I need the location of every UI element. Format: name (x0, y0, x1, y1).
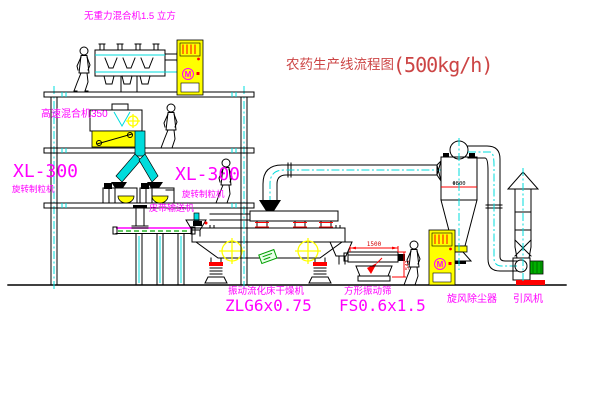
label-granulator-left-model: XL-300 (13, 161, 78, 182)
exhaust-duct (259, 163, 441, 211)
motor-symbol: M (437, 260, 444, 269)
diagram-title-capacity: (500kg/h) (393, 53, 492, 77)
label-granulator-right-name: 旋转制粒机 (182, 189, 225, 199)
labels: 农药生产线流程图 (500kg/h) 无重力混合机1.5 立方 高速混合机350… (12, 10, 543, 315)
motor-symbol: M (185, 70, 192, 79)
label-cyclone: 旋风除尘器 (447, 292, 497, 305)
gravity-free-mixer (95, 44, 178, 92)
downcomer-duct (468, 146, 517, 271)
floor-slab-middle (44, 148, 254, 153)
process-flow-diagram: 1500 541 Φ800 (0, 0, 600, 403)
spring-mount-right (309, 258, 331, 283)
dimension-1500: 1500 (350, 241, 398, 252)
label-sieve-model: FS0.6x1.5 (339, 296, 426, 315)
label-granulator-right-model: XL-300 (175, 164, 240, 185)
induced-draft-fan (513, 258, 545, 285)
label-fan: 引风机 (513, 292, 543, 305)
control-cabinet-right: M (429, 230, 455, 285)
label-high-speed-mixer: 高速混合机350 (41, 107, 108, 120)
rotary-granulators (103, 183, 174, 203)
dryer-discharge-chute (330, 242, 352, 264)
brand-emblem (259, 250, 277, 264)
worker-second-floor (161, 104, 177, 148)
elevator-cabinet-top: M (177, 40, 203, 95)
label-belt-conveyor: 皮带输送机 (149, 202, 194, 213)
diagram-title: 农药生产线流程图 (286, 57, 394, 72)
diagram-canvas: 1500 541 Φ800 (0, 0, 600, 403)
fluid-bed-dryer (186, 211, 352, 283)
worker-top-floor (74, 47, 90, 91)
spring-mount-left (205, 258, 227, 283)
sieve-length-dim: 1500 (367, 241, 382, 248)
label-dryer-model: ZLG6x0.75 (225, 296, 312, 315)
floor-slab-top (44, 92, 254, 97)
label-gravity-mixer: 无重力混合机1.5 立方 (84, 10, 176, 22)
vibrating-sieve: 1500 541 (344, 241, 411, 281)
label-granulator-left-name: 旋转制粒机 (12, 184, 55, 194)
belt-conveyor (113, 227, 195, 284)
